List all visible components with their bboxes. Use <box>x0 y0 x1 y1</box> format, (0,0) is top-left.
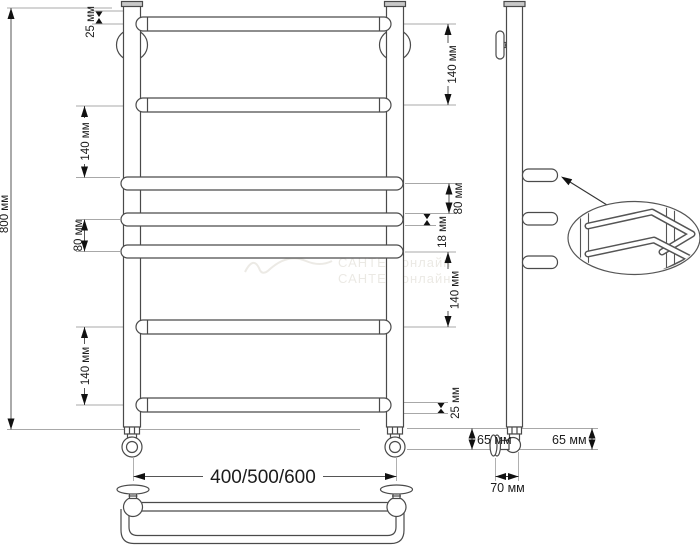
side-post-cap <box>504 2 525 7</box>
dim-right-upper-label: 140 мм <box>447 45 459 83</box>
side-hook-2 <box>523 213 558 226</box>
dim-right-lower-label: 140 мм <box>450 271 462 309</box>
detail-callout <box>561 177 700 279</box>
side-post <box>507 6 523 427</box>
dim-top-offset-label: 25 мм <box>85 6 97 38</box>
dim-left-upper-label: 140 мм <box>80 122 92 160</box>
side-hook-1 <box>523 169 558 182</box>
plan-mount-right <box>381 485 413 517</box>
dim-left-middle-label: 80 мм <box>73 220 85 252</box>
dim-width-options-label: 400/500/600 <box>210 467 316 488</box>
towel-rail-technical-drawing: САНТЕХ-онлайн САНТЕХ-онлайн <box>0 0 700 547</box>
front-view <box>117 2 411 458</box>
plan-hook-bar-inner <box>129 509 396 536</box>
hook-bars <box>121 177 403 258</box>
post-right-cap <box>385 2 406 7</box>
dim-left-lower-label: 140 мм <box>80 347 92 385</box>
dim-bottom-offset-label: 25 мм <box>450 387 462 419</box>
hook-bar-3 <box>121 245 403 258</box>
rung-bar-1 <box>136 17 391 31</box>
post-left-cap <box>122 2 143 7</box>
rung-bar-7 <box>136 398 391 412</box>
dim-fitting-height-side-label: 65 мм <box>552 433 587 447</box>
hook-bar-1 <box>121 177 403 190</box>
drawing-canvas: САНТЕХ-онлайн САНТЕХ-онлайн <box>0 0 700 547</box>
dim-wall-offset-label: 70 мм <box>490 481 525 495</box>
plan-hook-bar-outer <box>121 509 404 544</box>
bottom-fitting-right <box>385 427 405 457</box>
side-hook-3 <box>523 256 558 269</box>
plan-mount-left <box>117 485 149 517</box>
dim-fitting-height-front-label: 65 мм <box>477 433 512 447</box>
dim-hook-thickness-label: 18 мм <box>437 216 449 248</box>
watermark: САНТЕХ-онлайн САНТЕХ-онлайн <box>245 255 451 286</box>
side-view <box>490 2 558 457</box>
dim-overall-height-label: 800 мм <box>0 195 11 233</box>
dim-right-hook-gap-label: 80 мм <box>453 183 465 215</box>
callout-arrowhead <box>561 177 572 186</box>
bottom-view <box>117 485 413 544</box>
rung-bar-6 <box>136 320 391 334</box>
rung-bar-2 <box>136 98 391 112</box>
bottom-fitting-left <box>122 427 142 457</box>
hook-bar-2 <box>121 213 403 226</box>
